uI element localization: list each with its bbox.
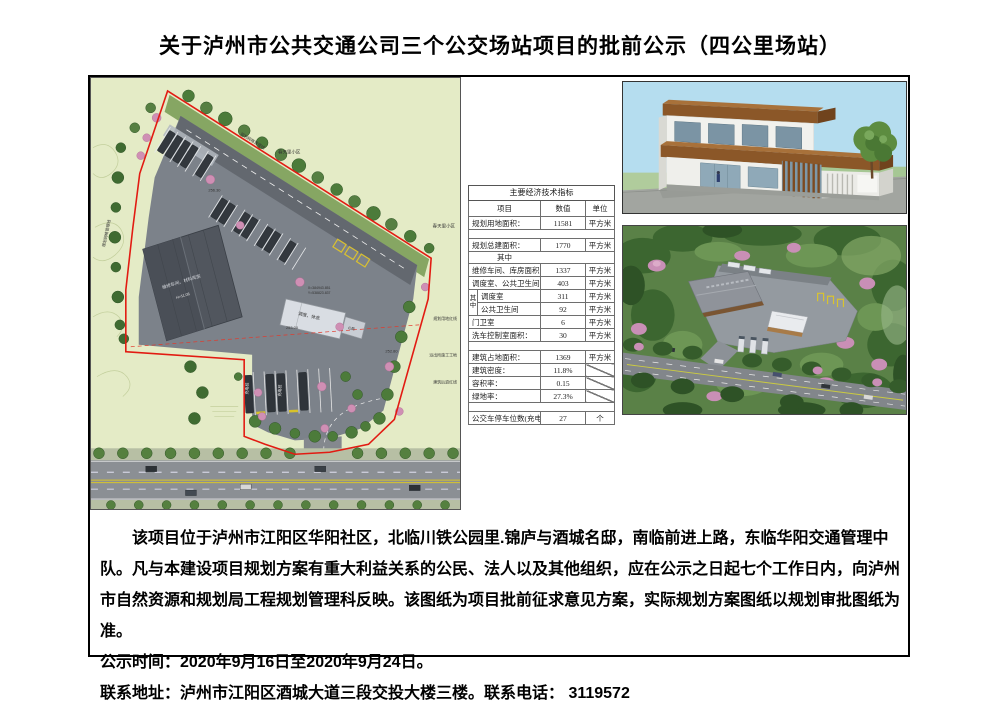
aerial-buses-bottom (738, 336, 769, 354)
table-cell-item: 公交车停车位数(充电桩)： (469, 412, 541, 425)
table-cell-unit-na (586, 390, 615, 403)
table-cell-item: 公共卫生间 (478, 303, 541, 316)
table-cell-value: 30 (541, 329, 586, 342)
col-header-value: 数值 (541, 201, 586, 217)
table-row: 规划用地面积：11581平方米 (469, 217, 615, 230)
table-cell-unit: 平方米 (586, 303, 615, 316)
publicity-time-line: 公示时间：2020年9月16日至2020年9月24日。 (100, 647, 902, 678)
table-cell-item: 建筑密度： (469, 364, 541, 377)
table-cell-value: 403 (541, 277, 586, 290)
table-row: 绿地率：27.3% (469, 390, 615, 403)
table-cell-unit: 平方米 (586, 277, 615, 290)
table-cell-value: 6 (541, 316, 586, 329)
plan-label-coord-x: X=384943.851 (308, 286, 331, 290)
table-cell-item: 门卫室 (469, 316, 541, 329)
table-cell-value: 311 (541, 290, 586, 303)
table-cell-unit-na (586, 377, 615, 390)
spacer-row (469, 342, 615, 351)
table-cell-unit: 平方米 (586, 329, 615, 342)
table-row: 洗车控制室面积：30平方米 (469, 329, 615, 342)
table-row: 调度室、公共卫生间403平方米 (469, 277, 615, 290)
table-row: 建筑占地面积：1369平方米 (469, 351, 615, 364)
table-cell-value: 27 (541, 412, 586, 425)
notice-text-block: 该项目位于泸州市江阳区华阳社区，北临川铁公园里.锦庐与酒城名邸，南临前进上路，东… (100, 523, 902, 707)
plan-label-neighborhood-top: 春天里小区 (278, 149, 301, 156)
table-row: 容积率：0.15 (469, 377, 615, 390)
table-cell-item: 规划总建面积： (469, 239, 541, 252)
table-cell-item: 规划用地面积： (469, 217, 541, 230)
table-row: 门卫室6平方米 (469, 316, 615, 329)
contact-line: 联系地址：泸州市江阳区酒城大道三段交投大楼三楼。联系电话： 3119572 (100, 678, 902, 707)
table-cell-item: 调度室 (478, 290, 541, 303)
table-cell-unit: 平方米 (586, 351, 615, 364)
table-cell-unit-na (586, 364, 615, 377)
content-frame: 规划网格管理线 春天里小区 春天里小区 规划网格管理线 规划用地红线 派出所施工… (88, 75, 910, 657)
plan-label-elev-a: 256.30 (208, 187, 221, 192)
person-figure (717, 171, 720, 182)
table-cell-value: 0.15 (541, 377, 586, 390)
notice-page: 关于泸州市公共交通公司三个公交场站项目的批前公示（四公里场站） (0, 0, 1000, 707)
table-cell-value: 1369 (541, 351, 586, 364)
plan-label-red-line: 规划用地红线 (433, 316, 457, 321)
plan-label-neighborhood-right: 春天里小区 (433, 222, 456, 229)
plan-label-elev-c: 252.80 (385, 349, 398, 354)
spacer-row (469, 230, 615, 239)
table-cell-item: 维修车间、库房面积： (469, 264, 541, 277)
table-cell-unit: 个 (586, 412, 615, 425)
table-row: 规划总建面积：1770平方米 (469, 239, 615, 252)
table-row: 公共卫生间92平方米 (469, 303, 615, 316)
table-cell-unit: 平方米 (586, 290, 615, 303)
table-row: 维修车间、库房面积：1337平方米 (469, 264, 615, 277)
plan-label-coord-y: Y=538823.837 (308, 291, 331, 295)
table-cell-value: 92 (541, 303, 586, 316)
group-label-cell: 其中 (469, 290, 478, 316)
notice-paragraph: 该项目位于泸州市江阳区华阳社区，北临川铁公园里.锦庐与酒城名邸，南临前进上路，东… (100, 523, 902, 647)
group-header-row: 其中 (469, 252, 615, 264)
spacer-row (469, 403, 615, 412)
plan-label-charging-2: 充电桩 (277, 384, 282, 396)
table-cell-item: 调度室、公共卫生间 (469, 277, 541, 290)
site-plan-image: 规划网格管理线 春天里小区 春天里小区 规划网格管理线 规划用地红线 派出所施工… (90, 77, 461, 510)
col-header-item: 项目 (469, 201, 541, 217)
table-cell-value: 1337 (541, 264, 586, 277)
table-cell-item: 容积率： (469, 377, 541, 390)
table-title: 主要经济技术指标 (469, 186, 615, 201)
aerial-render-image (622, 225, 907, 415)
building-render-image (622, 81, 907, 214)
table-cell-item: 建筑占地面积： (469, 351, 541, 364)
table-cell-value: 11.8% (541, 364, 586, 377)
plan-label-setback: 建筑后退红线 (433, 380, 457, 385)
table-cell-unit: 平方米 (586, 217, 615, 230)
table-cell-unit: 平方米 (586, 264, 615, 277)
table-cell-value: 27.3% (541, 390, 586, 403)
table-cell-unit: 平方米 (586, 316, 615, 329)
table-row: 其中调度室311平方米 (469, 290, 615, 303)
page-title: 关于泸州市公共交通公司三个公交场站项目的批前公示（四公里场站） (0, 30, 1000, 60)
plan-label-elev-b: 253.00 (286, 325, 299, 330)
economic-indicator-table: 主要经济技术指标项目数值单位规划用地面积：11581平方米规划总建面积：1770… (468, 185, 615, 425)
table-row: 建筑密度：11.8% (469, 364, 615, 377)
table-cell-unit: 平方米 (586, 239, 615, 252)
plan-label-charging-1: 充电桩 (244, 382, 249, 394)
table-cell-item: 绿地率： (469, 390, 541, 403)
table-row: 公交车停车位数(充电桩)：27个 (469, 412, 615, 425)
table-cell-value: 1770 (541, 239, 586, 252)
indicator-table-wrap: 主要经济技术指标项目数值单位规划用地面积：11581平方米规划总建面积：1770… (468, 185, 618, 425)
table-cell-item: 洗车控制室面积： (469, 329, 541, 342)
table-cell-value: 11581 (541, 217, 586, 230)
col-header-unit: 单位 (586, 201, 615, 217)
plan-label-construction-site: 派出所施工工地 (429, 353, 457, 358)
